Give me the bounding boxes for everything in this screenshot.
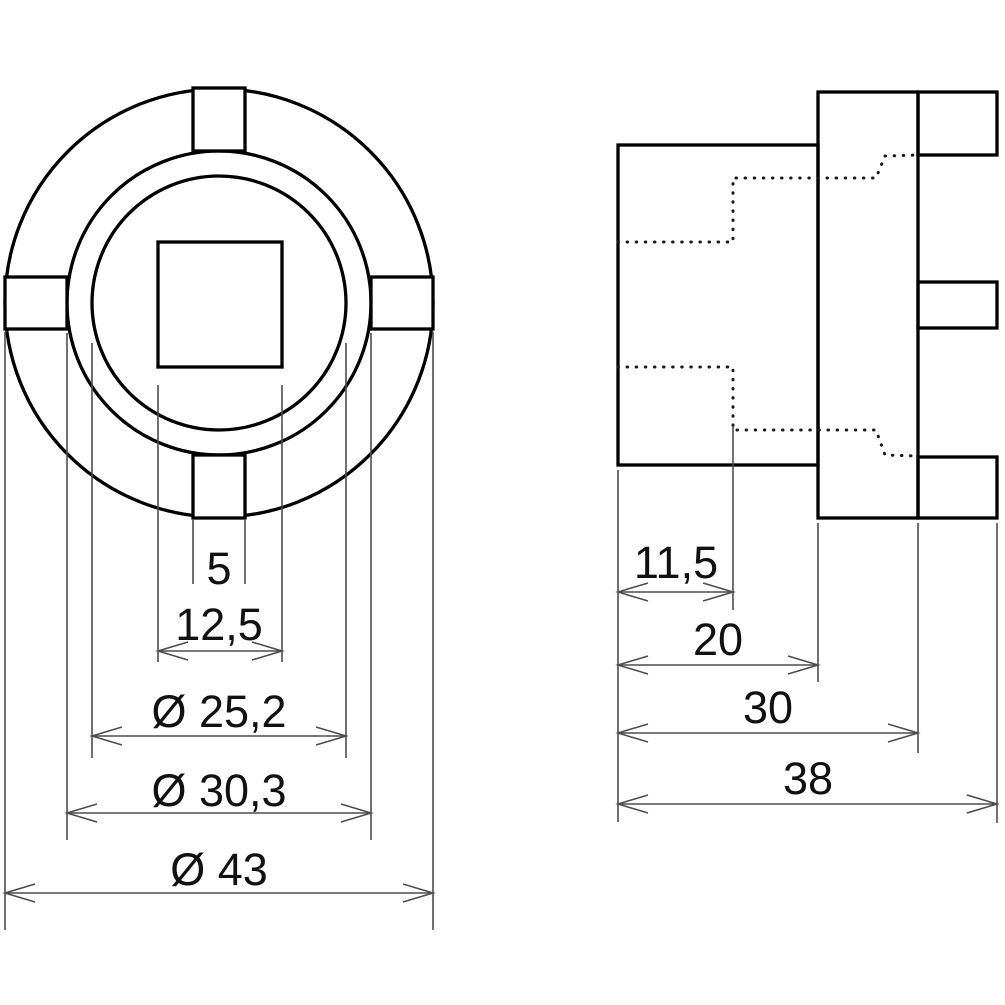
dim-label-square-drive-depth: 11,5 [634,537,718,588]
front-view [5,88,433,518]
square-drive-hole [158,242,282,367]
dim-label-overall-length: 38 [783,753,833,804]
dim-label-bore-diameter: Ø 25,2 [151,686,286,737]
socket-technical-drawing: 5 12,5 Ø 25,2 Ø 30,3 Ø 43 [0,0,1005,1005]
body-profile [618,145,818,465]
front-view-dimension-labels: 5 12,5 Ø 25,2 Ø 30,3 Ø 43 [151,543,286,895]
hidden-bore-contour-upper [618,155,917,242]
slot-left [5,277,67,329]
prong-middle [918,282,997,328]
slot-bottom [193,455,245,518]
slot-top [193,88,245,151]
dim-label-outer-diameter: Ø 43 [170,844,268,895]
technical-drawing-page: 5 12,5 Ø 25,2 Ø 30,3 Ø 43 [0,0,1005,1005]
dim-label-body-length: 20 [693,614,743,665]
side-view [618,92,997,518]
dim-label-inner-ring-diameter: Ø 30,3 [151,765,286,816]
dim-label-square-drive-width: 12,5 [175,599,263,650]
dim-label-length-to-slots: 30 [743,682,793,733]
hidden-bore-contour-lower [618,367,917,456]
prong-top [918,92,997,155]
dim-label-slot-width: 5 [206,543,231,594]
slot-right [371,277,433,329]
prong-bottom [918,457,997,518]
